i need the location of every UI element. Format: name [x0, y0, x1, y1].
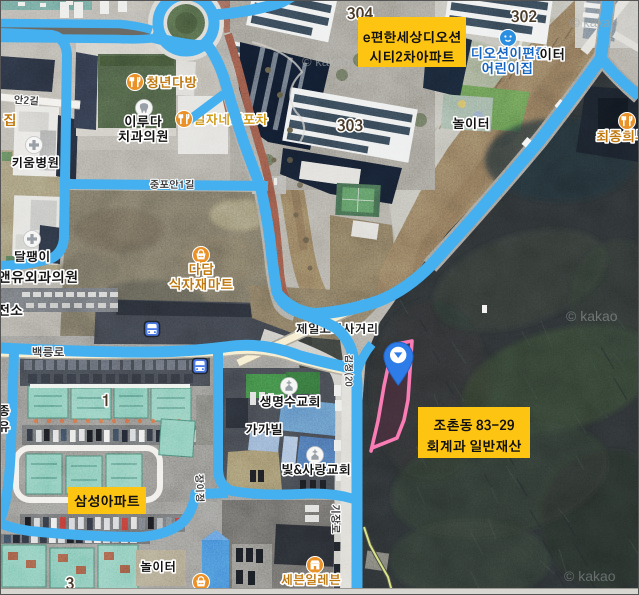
- svg-text:© kakao: © kakao: [570, 15, 618, 30]
- svg-text:© kakao: © kakao: [302, 54, 350, 69]
- svg-text:© kakao: © kakao: [564, 568, 616, 584]
- svg-text:© kakao: © kakao: [566, 308, 618, 324]
